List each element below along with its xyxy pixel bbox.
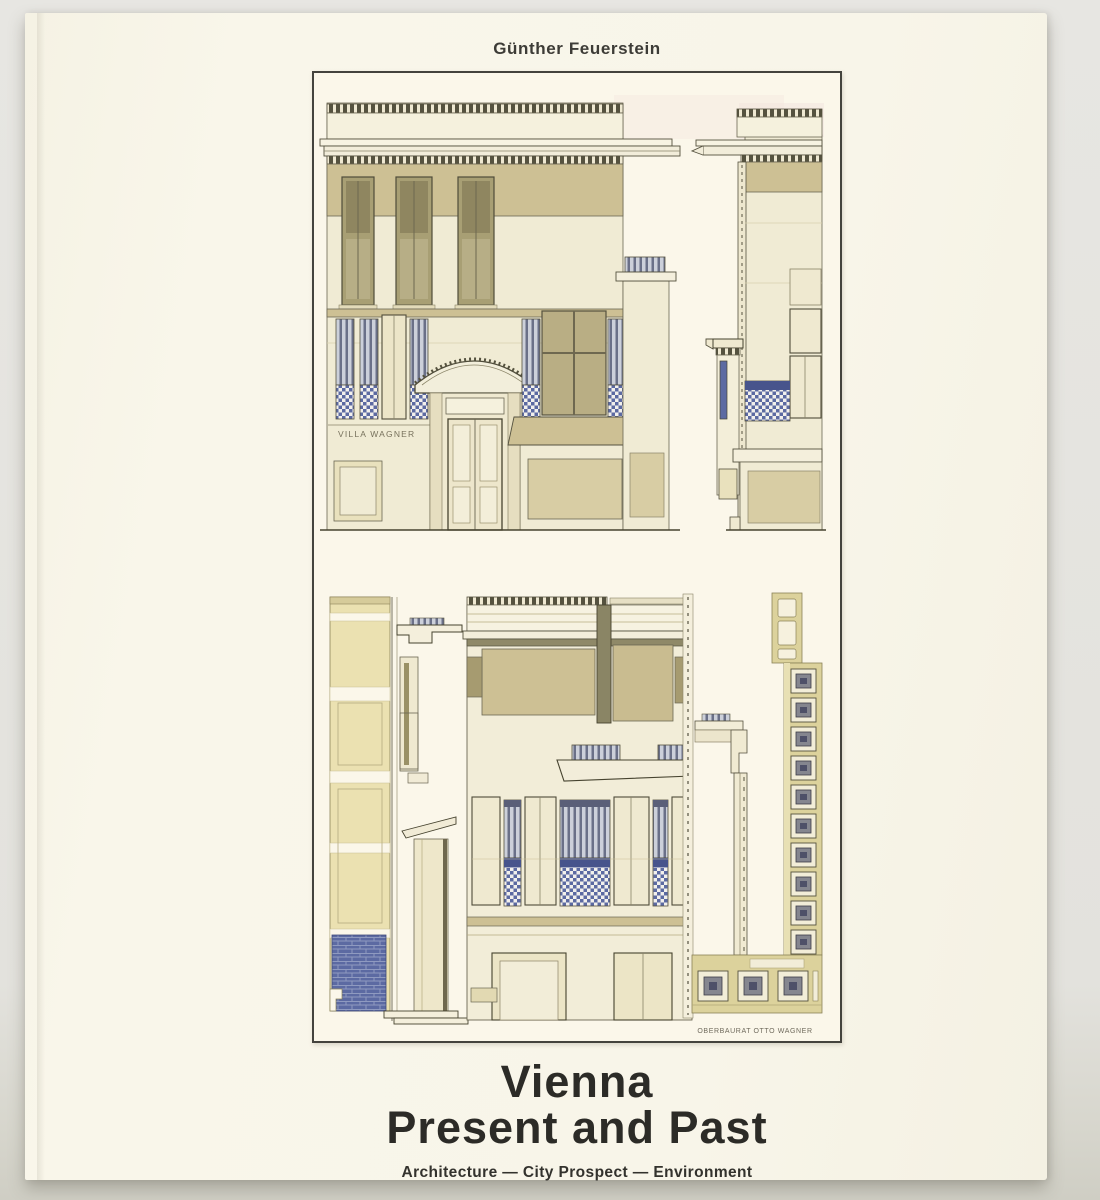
book-cover: Günther Feuerstein	[25, 13, 1047, 1180]
plate-caption: OBERBAURAT OTTO WAGNER	[697, 1028, 812, 1035]
upper-windows	[339, 177, 497, 309]
main-elevation-drawing: VILLA WAGNER	[320, 103, 680, 530]
architectural-plate-drawing: VILLA WAGNER	[314, 73, 840, 1041]
side-elevation-drawing	[692, 109, 826, 530]
wall-section-drawing	[330, 597, 468, 1024]
plate-frame: VILLA WAGNER	[312, 71, 842, 1043]
author-name: Günther Feuerstein	[312, 39, 842, 59]
facade-detail-drawing	[463, 597, 692, 1020]
blue-brick-base	[332, 935, 386, 1011]
book-subtitle: Architecture — City Prospect — Environme…	[312, 1164, 842, 1182]
title-block: Vienna Present and Past Architecture — C…	[312, 1059, 842, 1182]
entrance-door	[448, 419, 502, 530]
book-title-line1: Vienna	[312, 1059, 842, 1105]
ornament-square-row	[698, 971, 818, 1001]
ornament-border-drawing: OBERBAURAT OTTO WAGNER	[683, 593, 822, 1035]
book-title-line2: Present and Past	[312, 1105, 842, 1151]
villa-wagner-sign: VILLA WAGNER	[338, 429, 415, 439]
